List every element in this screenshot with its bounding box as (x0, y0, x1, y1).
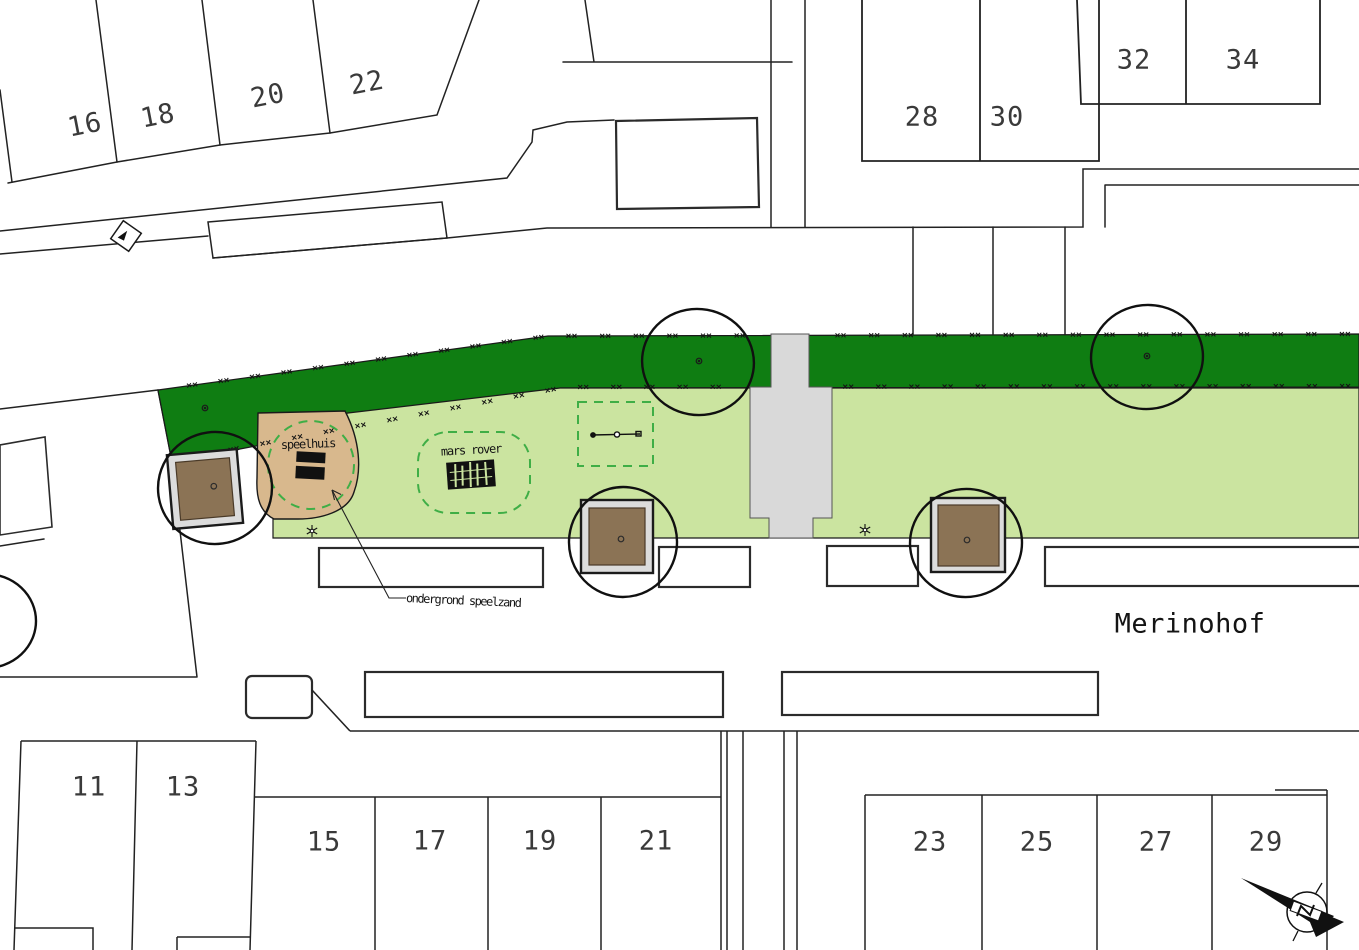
house-number-29: 29 (1249, 827, 1284, 858)
house-number-17: 17 (413, 826, 448, 857)
utility-marker-icon (111, 221, 142, 252)
speelhuis-label: speelhuis (281, 436, 336, 452)
house-number-34: 34 (1226, 45, 1261, 76)
plan-drawing (0, 0, 1359, 950)
house-number-18: 18 (138, 97, 178, 134)
house-number-19: 19 (523, 826, 558, 857)
speelhuis-icon (292, 451, 328, 480)
street-name-label: Merinohof (1115, 609, 1266, 640)
house-number-16: 16 (65, 106, 105, 143)
garage-buildings (319, 546, 1359, 587)
sandbox-right (931, 498, 1005, 572)
site-plan: 16 18 20 22 28 30 32 34 11 13 15 17 19 2… (0, 0, 1359, 950)
house-number-21: 21 (639, 826, 674, 857)
house-row-buildings (246, 672, 1098, 718)
house-number-11: 11 (72, 772, 107, 803)
house-number-25: 25 (1020, 827, 1055, 858)
house-number-20: 20 (248, 77, 288, 114)
house-number-22: 22 (347, 64, 387, 101)
house-number-30: 30 (990, 102, 1025, 133)
building-left-edge (0, 437, 52, 535)
house-number-23: 23 (913, 827, 948, 858)
north-arrow-icon (1241, 878, 1344, 941)
building-top-middle (616, 118, 759, 209)
mars-rover-icon (446, 459, 496, 489)
sandbox-left (167, 449, 243, 529)
house-number-27: 27 (1139, 827, 1174, 858)
sandbox-middle (581, 500, 653, 573)
house-number-13: 13 (166, 772, 201, 803)
house-number-15: 15 (307, 827, 342, 858)
house-number-32: 32 (1117, 45, 1152, 76)
house-number-28: 28 (905, 102, 940, 133)
